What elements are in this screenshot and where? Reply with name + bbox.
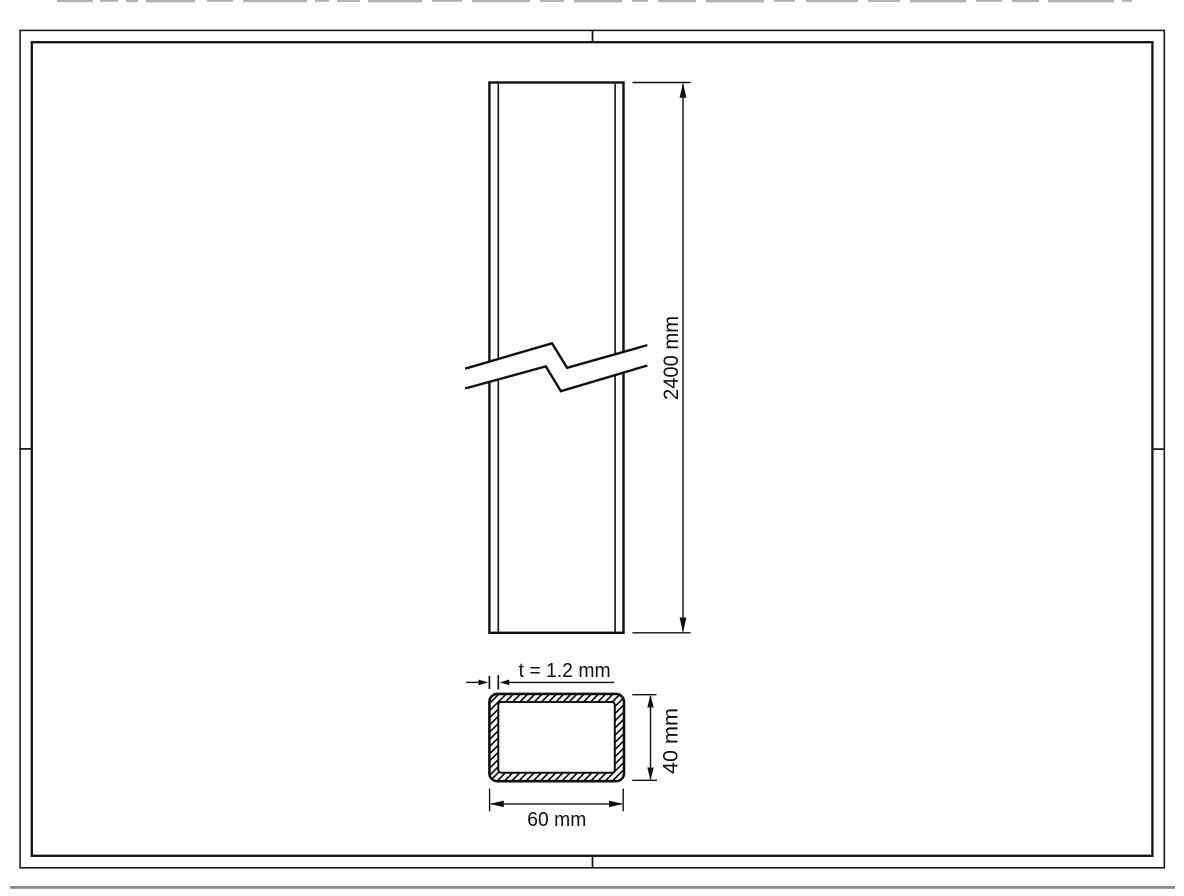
svg-text:2400 mm: 2400 mm bbox=[660, 316, 683, 400]
svg-text:t = 1.2 mm: t = 1.2 mm bbox=[519, 660, 611, 682]
svg-text:60 mm: 60 mm bbox=[527, 808, 586, 831]
svg-text:40 mm: 40 mm bbox=[660, 708, 683, 774]
